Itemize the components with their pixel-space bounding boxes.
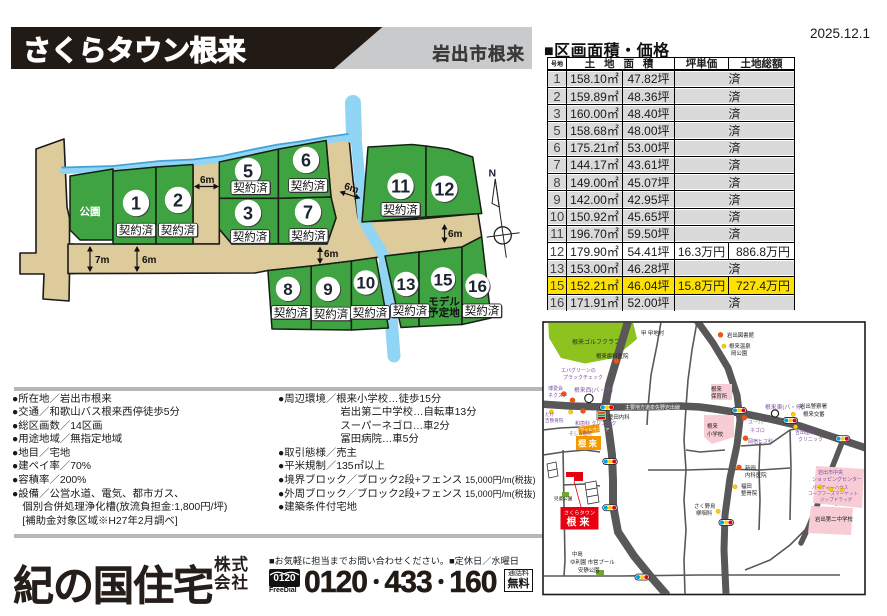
svg-text:ジップドラッグ: ジップドラッグ xyxy=(820,496,853,503)
svg-text:岡公園: 岡公園 xyxy=(731,350,747,357)
svg-text:契約済: 契約済 xyxy=(393,304,428,318)
svg-text:契約済: 契約済 xyxy=(383,202,418,216)
svg-text:整骨院: 整骨院 xyxy=(741,489,758,497)
svg-text:保育所: 保育所 xyxy=(711,392,728,400)
svg-text:甲 甲地村: 甲 甲地村 xyxy=(641,329,665,337)
svg-text:根来: 根来 xyxy=(567,516,593,529)
svg-text:9: 9 xyxy=(323,280,332,299)
svg-text:岩出図書館: 岩出図書館 xyxy=(727,331,754,339)
svg-text:ネゴロ: ネゴロ xyxy=(750,427,765,434)
svg-text:契約済: 契約済 xyxy=(119,223,154,237)
svg-text:契約済: 契約済 xyxy=(233,230,268,244)
svg-text:2: 2 xyxy=(173,190,183,210)
svg-text:内科医院: 内科医院 xyxy=(745,471,767,479)
svg-text:3: 3 xyxy=(243,203,253,223)
svg-text:ネクスト: ネクスト xyxy=(548,393,568,399)
svg-text:契約済: 契約済 xyxy=(314,307,349,321)
svg-text:5: 5 xyxy=(243,161,253,181)
svg-text:クリニック: クリニック xyxy=(798,437,823,443)
svg-text:契約済: 契約済 xyxy=(353,305,388,319)
svg-text:7: 7 xyxy=(303,202,313,222)
svg-text:中島: 中島 xyxy=(572,550,583,558)
svg-text:契約済: 契約済 xyxy=(465,304,500,318)
svg-text:エバグリーンの: エバグリーンの xyxy=(561,367,596,374)
svg-text:根来温泉: 根来温泉 xyxy=(729,342,751,350)
svg-text:さくらタウン: さくらタウン xyxy=(564,509,595,517)
svg-text:根来: 根来 xyxy=(578,439,599,449)
svg-text:根来東(バ・停): 根来東(バ・停) xyxy=(765,403,804,411)
svg-text:6: 6 xyxy=(301,150,311,170)
svg-text:7m: 7m xyxy=(95,255,110,266)
svg-text:福田: 福田 xyxy=(741,482,752,490)
svg-text:6m: 6m xyxy=(200,175,215,186)
svg-text:16: 16 xyxy=(468,277,487,296)
svg-text:1: 1 xyxy=(131,193,141,213)
svg-text:岡宿ヒフ科: 岡宿ヒフ科 xyxy=(748,438,773,445)
svg-text:根来ゴルフクラブ: 根来ゴルフクラブ xyxy=(572,338,620,346)
svg-text:契約済: 契約済 xyxy=(233,181,268,195)
svg-text:岩出警察署: 岩出警察署 xyxy=(800,402,828,410)
svg-text:博愛会: 博愛会 xyxy=(548,385,563,392)
svg-text:柳咽科: 柳咽科 xyxy=(696,509,713,517)
svg-text:さく野鳥: さく野鳥 xyxy=(694,502,716,510)
svg-text:契約済: 契約済 xyxy=(274,305,309,319)
svg-text:新岡: 新岡 xyxy=(745,464,756,472)
svg-text:13: 13 xyxy=(397,275,416,294)
svg-text:契約済: 契約済 xyxy=(161,223,196,237)
svg-text:6m: 6m xyxy=(324,249,339,260)
svg-text:安静公園: 安静公園 xyxy=(578,566,600,574)
svg-text:根来: 根来 xyxy=(707,422,718,430)
svg-text:8: 8 xyxy=(283,280,292,299)
svg-text:主要地方道泉佐野岩出線: 主要地方道泉佐野岩出線 xyxy=(625,404,680,411)
svg-text:根来西(バ・停): 根来西(バ・停) xyxy=(574,386,613,394)
svg-text:予定地: 予定地 xyxy=(428,306,460,319)
svg-text:15: 15 xyxy=(434,270,453,289)
svg-text:プラックチェック: プラックチェック xyxy=(563,375,603,381)
svg-text:豊田内科: 豊田内科 xyxy=(608,413,630,421)
svg-text:岩出市中央: 岩出市中央 xyxy=(818,469,843,476)
svg-text:N: N xyxy=(489,168,497,180)
svg-text:10: 10 xyxy=(356,274,375,293)
svg-text:コープフーズマーケット: コープフーズマーケット xyxy=(808,490,858,497)
svg-text:パーティーハウス: パーティーハウス xyxy=(812,484,849,491)
svg-text:11: 11 xyxy=(391,176,410,196)
svg-text:そしろ医院: そしろ医院 xyxy=(569,430,592,437)
svg-text:根来: 根来 xyxy=(711,385,722,393)
svg-text:根来歯科医院: 根来歯科医院 xyxy=(596,352,629,360)
svg-text:公園: 公園 xyxy=(80,206,101,218)
svg-text:スーパー: スーパー xyxy=(748,420,768,426)
svg-text:契約済: 契約済 xyxy=(291,178,326,192)
svg-text:6m: 6m xyxy=(142,255,157,266)
svg-text:根来交番: 根来交番 xyxy=(803,410,825,418)
svg-text:吉田歯科: 吉田歯科 xyxy=(795,429,815,436)
svg-text:吉整骨院: 吉整骨院 xyxy=(545,417,564,424)
svg-text:契約済: 契約済 xyxy=(291,228,326,242)
svg-text:岩出第二中学校: 岩出第二中学校 xyxy=(815,515,853,523)
svg-text:児童公園: 児童公園 xyxy=(554,495,573,502)
svg-text:和歯科 クリニック: 和歯科 クリニック xyxy=(575,420,616,427)
svg-text:ゆ利園 市営プール: ゆ利園 市営プール xyxy=(570,558,615,566)
svg-text:小学校: 小学校 xyxy=(707,430,724,438)
svg-text:ショッピングセンター: ショッピングセンター xyxy=(812,476,862,483)
svg-text:12: 12 xyxy=(434,179,454,199)
svg-text:6m: 6m xyxy=(448,229,463,240)
